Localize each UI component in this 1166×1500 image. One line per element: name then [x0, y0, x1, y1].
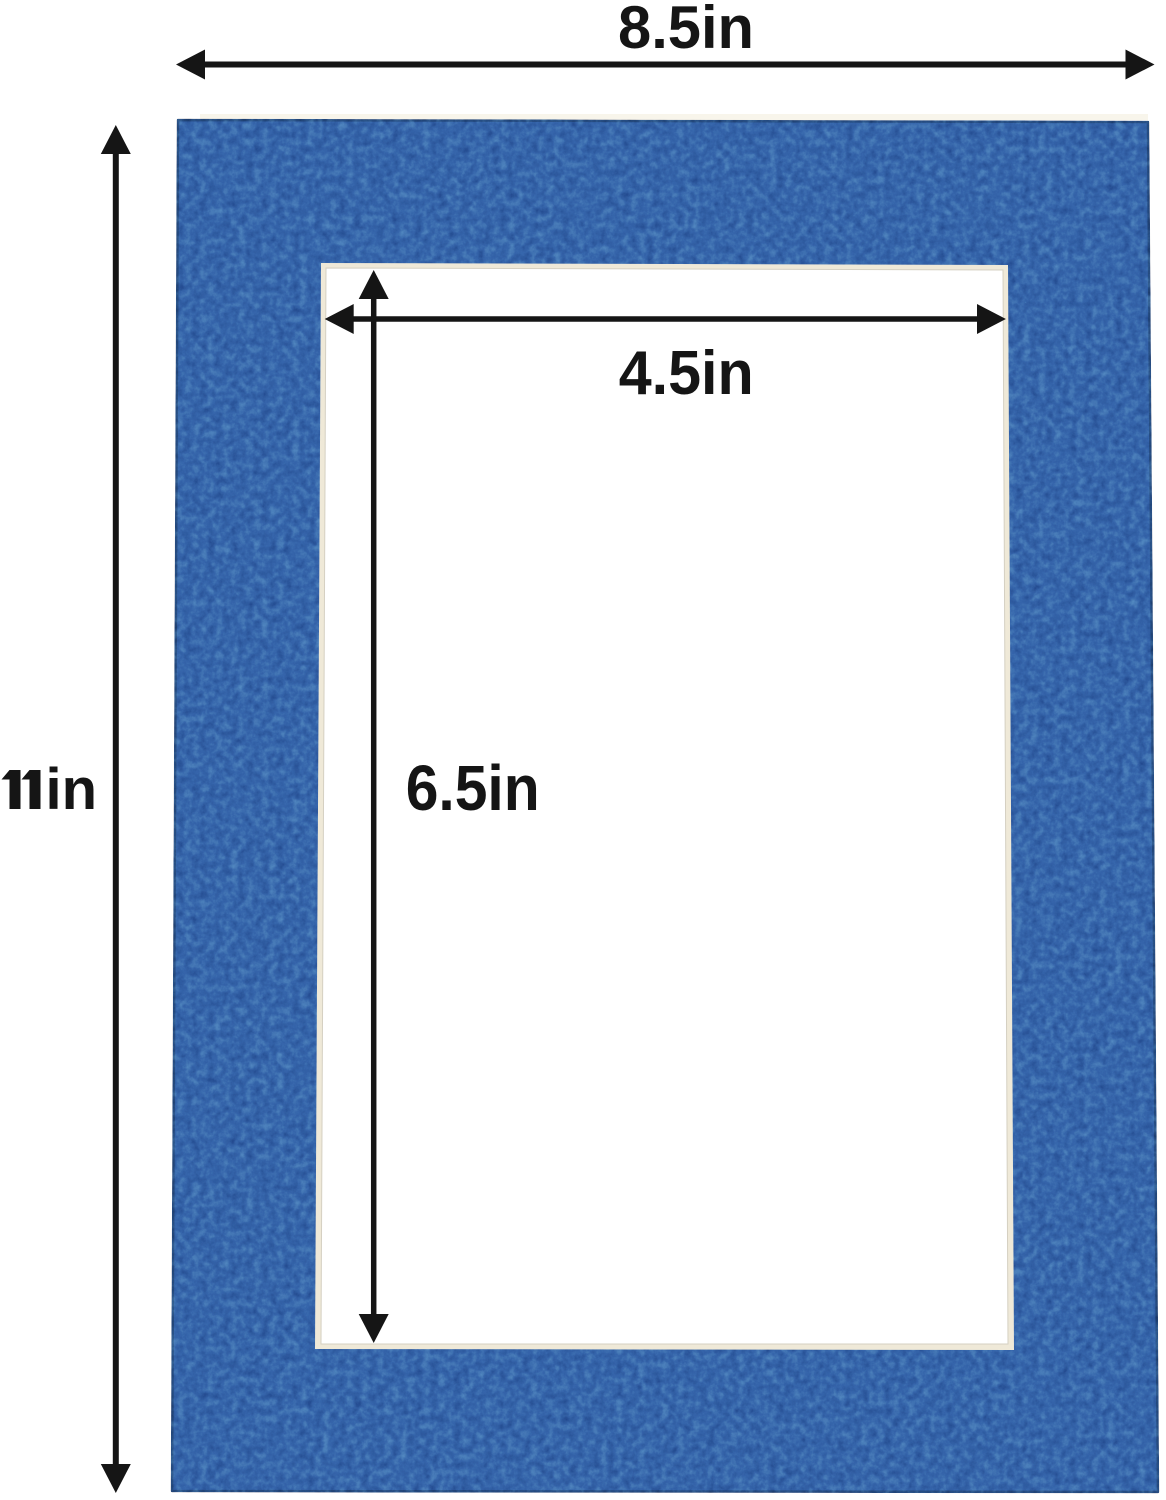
svg-text:4.5in: 4.5in — [619, 339, 754, 408]
svg-text:in: in — [46, 757, 98, 822]
svg-text:6.5in: 6.5in — [406, 752, 540, 824]
svg-text:8.5in: 8.5in — [618, 0, 754, 61]
